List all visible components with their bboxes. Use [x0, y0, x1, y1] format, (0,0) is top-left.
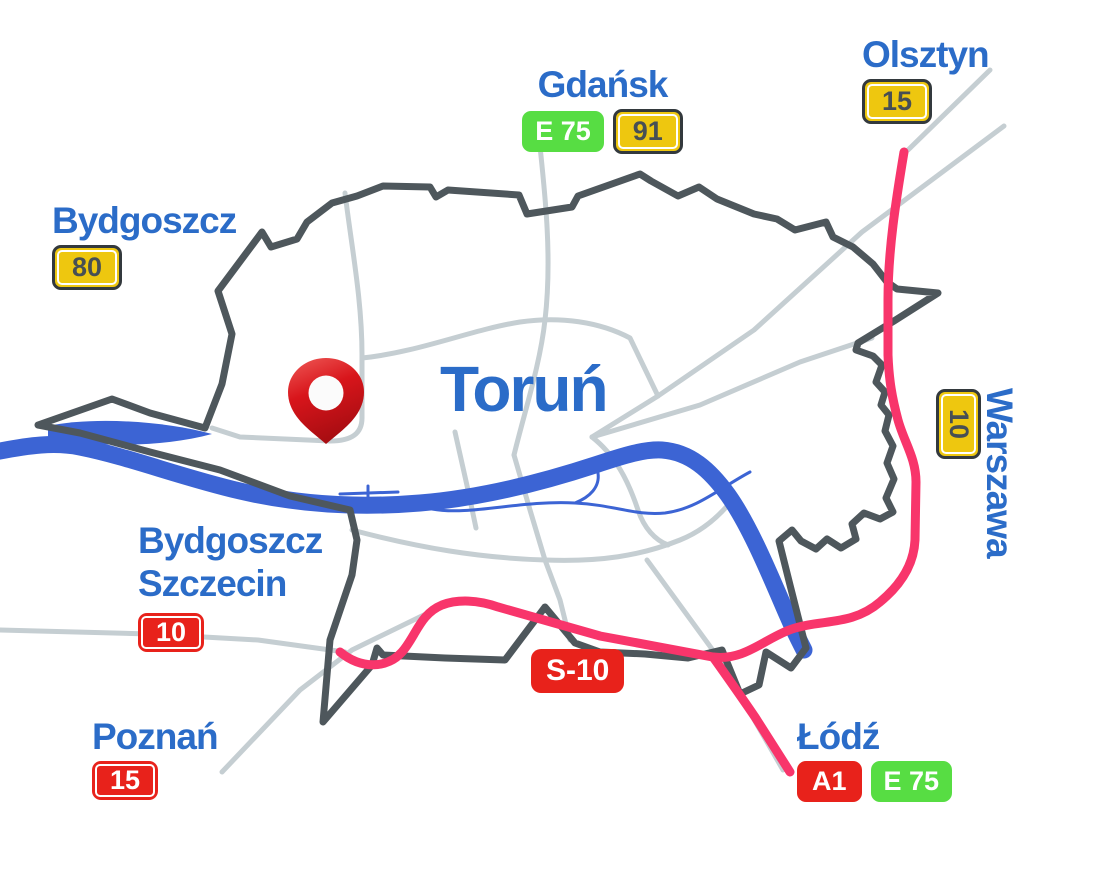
destination-poznan-name: Poznań — [92, 718, 218, 756]
route-a1-path — [713, 657, 790, 772]
route-badge-15-olsztyn: 15 — [862, 79, 932, 124]
route-badge-91-gdansk: 91 — [613, 109, 683, 154]
map-canvas: Toruń Gdańsk E 75 91 Olsztyn 15 Bydgoszc… — [0, 0, 1114, 888]
destination-bydgoszcz-szczecin-line1: Bydgoszcz — [138, 522, 322, 560]
route-badge-15-poznan: 15 — [92, 761, 158, 800]
route-badge-e75-lodz: E 75 — [871, 761, 953, 802]
route-badge-e75-gdansk: E 75 — [522, 111, 604, 152]
destination-bydgoszcz-name: Bydgoszcz — [52, 202, 236, 240]
location-pin — [288, 358, 364, 444]
destination-bydgoszcz: Bydgoszcz 80 — [52, 202, 236, 290]
destination-poznan: Poznań 15 — [92, 718, 218, 800]
destination-olsztyn: Olsztyn 15 — [862, 36, 989, 124]
destination-gdansk: Gdańsk E 75 91 — [505, 66, 700, 154]
route-badge-a1-lodz: A1 — [797, 761, 862, 802]
city-title: Toruń — [440, 352, 607, 426]
destination-lodz-name: Łódź — [797, 718, 879, 756]
route-badge-10-szczecin: 10 — [138, 613, 204, 652]
destination-olsztyn-name: Olsztyn — [862, 36, 989, 74]
destination-bydgoszcz-szczecin-line2: Szczecin — [138, 565, 286, 603]
river-path — [0, 445, 804, 650]
route-label-s10: S-10 — [531, 649, 624, 693]
route-badge-80-bydgoszcz: 80 — [52, 245, 122, 290]
destination-lodz: Łódź A1 E 75 — [797, 718, 952, 802]
destination-bydgoszcz-szczecin: Bydgoszcz Szczecin 10 — [138, 522, 322, 652]
destination-warszawa-name: Warszawa — [978, 388, 1020, 558]
route-badge-10-warszawa: 10 — [936, 389, 981, 459]
destination-gdansk-name: Gdańsk — [538, 66, 668, 104]
